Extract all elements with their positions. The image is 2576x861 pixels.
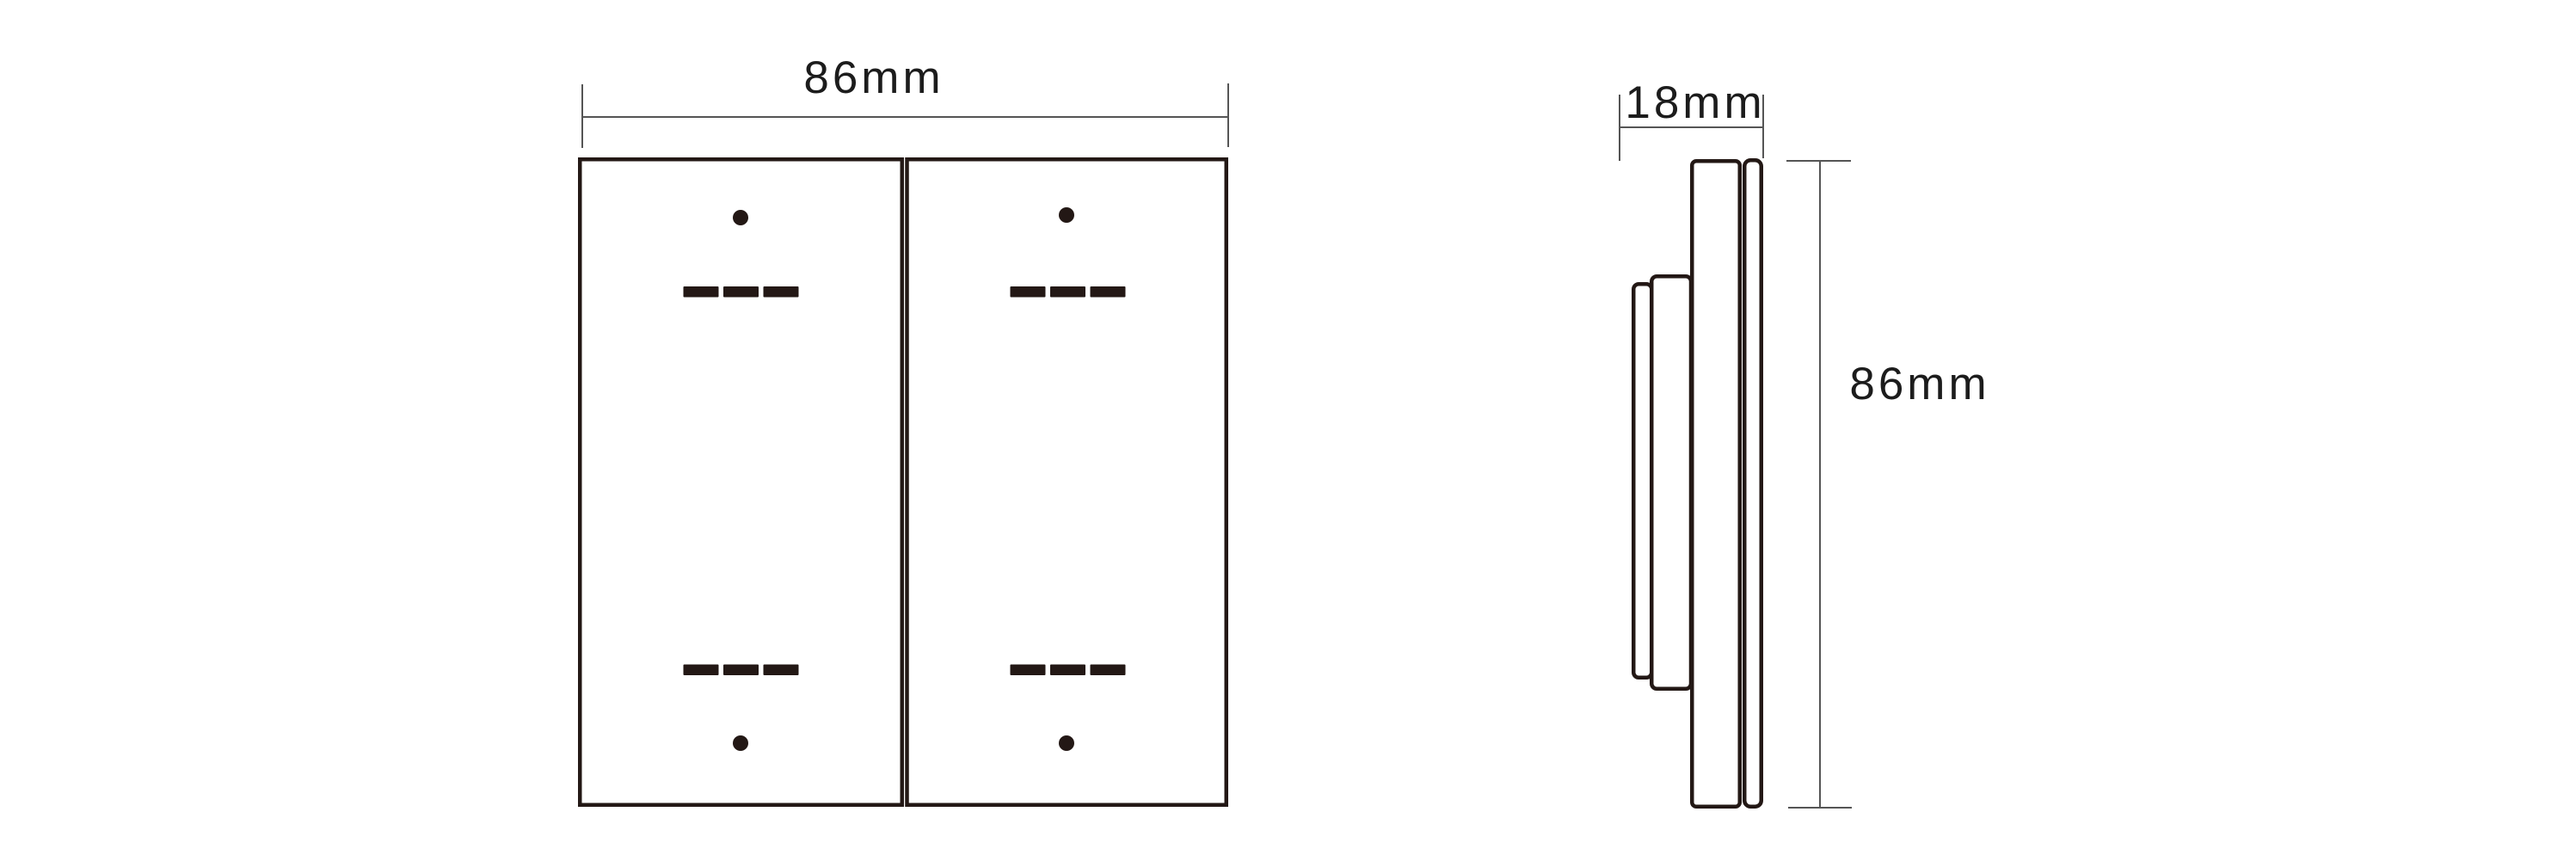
dash-mark xyxy=(684,665,719,676)
front-panel-left-gang xyxy=(580,159,902,805)
outline-group xyxy=(580,159,1761,807)
front-view xyxy=(580,159,1227,805)
side-height-label: 86mm xyxy=(1849,359,1989,409)
side-main-body xyxy=(1692,161,1740,807)
dash-mark xyxy=(723,665,759,676)
dash-mark xyxy=(723,286,759,298)
indicator-dot xyxy=(1059,207,1074,223)
side-height-dimension xyxy=(1786,161,1852,808)
dash-mark xyxy=(1050,286,1085,298)
front-panel-right-gang xyxy=(907,159,1227,805)
drawing-canvas: 86mm 18mm 86mm xyxy=(0,0,2576,861)
dash-mark xyxy=(684,286,719,298)
dash-mark xyxy=(1011,665,1046,676)
dimension-lines-group xyxy=(582,83,1852,808)
dash-mark xyxy=(1091,286,1126,298)
dash-mark xyxy=(764,665,799,676)
indicator-dot xyxy=(733,210,748,225)
touch-dash-row xyxy=(1011,286,1126,298)
side-front-plate xyxy=(1744,160,1761,807)
side-rear-box-step xyxy=(1651,276,1691,689)
side-view xyxy=(1633,160,1761,807)
dimension-labels-group: 86mm 18mm 86mm xyxy=(803,52,1989,409)
marks-group xyxy=(684,207,1126,751)
dash-mark xyxy=(764,286,799,298)
indicator-dot xyxy=(733,735,748,751)
side-depth-label: 18mm xyxy=(1625,77,1765,128)
touch-dash-row xyxy=(684,286,799,298)
dash-mark xyxy=(1011,286,1046,298)
touch-dash-row xyxy=(1011,665,1126,676)
side-rear-box-outer xyxy=(1633,284,1651,678)
touch-dash-row xyxy=(684,665,799,676)
dash-mark xyxy=(1050,665,1085,676)
dash-mark xyxy=(1091,665,1126,676)
indicator-dot xyxy=(1059,735,1074,751)
dimension-drawing: 86mm 18mm 86mm xyxy=(0,0,2576,861)
front-width-label: 86mm xyxy=(803,52,944,103)
